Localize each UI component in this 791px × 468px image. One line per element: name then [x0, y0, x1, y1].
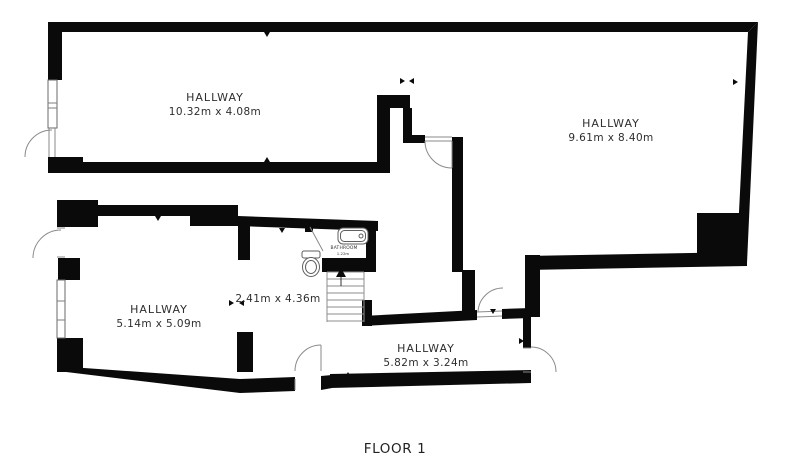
- wall-segment: [58, 258, 80, 280]
- wall-segment: [362, 310, 477, 326]
- door-arc: [25, 130, 52, 157]
- bathroom-door-leaf: [310, 227, 323, 251]
- door-arc: [425, 141, 452, 168]
- room-dimensions: 9.61m x 8.40m: [568, 132, 653, 144]
- wall-segment: [403, 135, 425, 143]
- room-label-hallway-top-left: HALLWAY 10.32m x 4.08m: [169, 91, 261, 118]
- wall-segment: [525, 255, 540, 317]
- room-dimensions: 5.82m x 3.24m: [383, 357, 468, 369]
- tick-mark: [400, 78, 405, 84]
- tick-mark: [264, 157, 270, 162]
- room-dimensions: 10.32m x 4.08m: [169, 106, 261, 118]
- room-name: HALLWAY: [186, 91, 244, 104]
- wall-segment: [377, 95, 410, 108]
- wall-segment: [330, 370, 531, 388]
- wall-segment: [462, 270, 475, 317]
- wall-segment: [321, 375, 332, 390]
- wall-segment: [238, 226, 250, 260]
- room-name: HALLWAY: [397, 342, 455, 355]
- door-arc: [295, 345, 321, 371]
- door-arc: [478, 288, 503, 312]
- wall-segment: [57, 338, 83, 372]
- room-label-hallway-top-right: HALLWAY 9.61m x 8.40m: [568, 117, 653, 144]
- wall-segment: [190, 205, 238, 226]
- door-top-left-room: [25, 128, 55, 157]
- door-vestibule: [477, 288, 503, 317]
- door-bottom-hall-right: [523, 347, 556, 372]
- room-name: HALLWAY: [582, 117, 640, 130]
- wall-segment: [377, 97, 390, 173]
- door-bottom-left-room: [33, 228, 65, 258]
- floor-title: FLOOR 1: [364, 441, 427, 457]
- bathtub-drain: [359, 234, 363, 238]
- room-label-corridor: 2.41m x 4.36m: [235, 293, 320, 305]
- tick-mark: [155, 216, 161, 221]
- room-dimensions: 2.41m x 4.36m: [235, 293, 320, 305]
- room-label-hallway-bottom-middle: HALLWAY 5.82m x 3.24m: [383, 342, 468, 369]
- tick-mark: [264, 32, 270, 37]
- wall-segment: [523, 317, 531, 348]
- room-name: HALLWAY: [130, 303, 188, 316]
- door-frame: [477, 316, 502, 317]
- tick-mark: [733, 79, 738, 85]
- window: [57, 280, 65, 338]
- window: [48, 80, 57, 128]
- room-dimensions: 1.22m: [337, 251, 350, 256]
- wall-segment: [98, 205, 190, 216]
- wall-segment: [58, 367, 240, 393]
- door-notch: [425, 137, 452, 168]
- floor-plan-canvas: HALLWAY 10.32m x 4.08m HALLWAY 9.61m x 8…: [0, 0, 791, 468]
- wall-segment: [525, 252, 747, 270]
- wall-segment: [62, 162, 390, 173]
- door-frame: [477, 311, 502, 312]
- wall-segment: [322, 258, 376, 272]
- wall-segment: [452, 137, 463, 272]
- wall-segment: [502, 308, 531, 319]
- door-corridor-bottom: [295, 345, 321, 390]
- wall-segment: [48, 22, 758, 32]
- wall-segment: [237, 332, 253, 372]
- wall-segment: [57, 200, 98, 227]
- wall-segment: [48, 22, 62, 80]
- room-label-bathroom: BATHROOM 1.22m: [330, 245, 357, 256]
- tick-mark: [229, 300, 234, 306]
- toilet-tank: [302, 251, 320, 258]
- door-arc: [531, 347, 556, 372]
- tick-mark: [409, 78, 414, 84]
- room-label-hallway-bottom-left: HALLWAY 5.14m x 5.09m: [116, 303, 201, 330]
- tick-mark: [279, 228, 285, 233]
- room-dimensions: 5.14m x 5.09m: [116, 318, 201, 330]
- walls: [48, 22, 758, 393]
- wall-segment: [240, 377, 295, 393]
- door-arc: [33, 230, 61, 258]
- toilet-bowl-inner: [306, 261, 317, 274]
- staircase: [327, 272, 364, 322]
